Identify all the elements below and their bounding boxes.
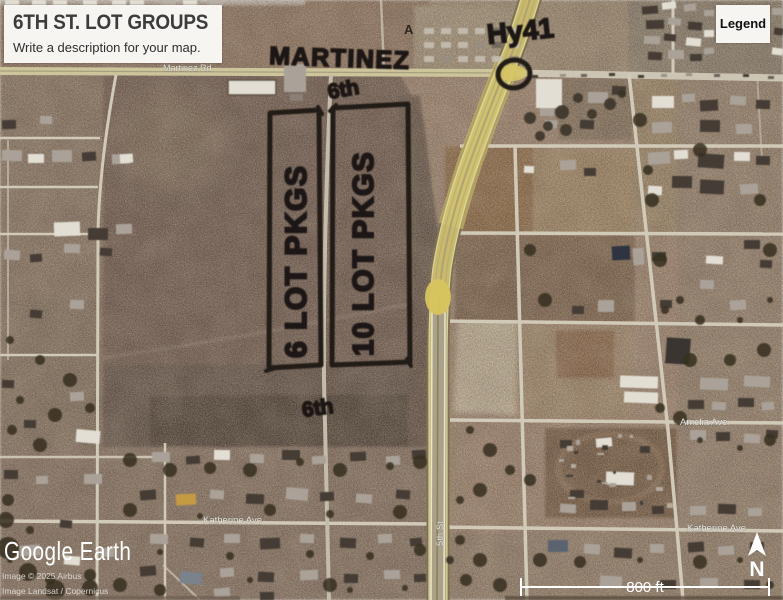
svg-text:5th St: 5th St [435,521,446,546]
svg-text:Katherine Ave: Katherine Ave [203,515,262,526]
svg-text:Katherine Ave: Katherine Ave [687,523,746,534]
svg-text:10 LOT PKGS: 10 LOT PKGS [348,151,380,356]
svg-text:N: N [749,558,764,581]
svg-text:800 ft: 800 ft [626,579,664,596]
svg-text:Martinez Rd: Martinez Rd [163,63,212,73]
svg-text:6 LOT PKGS: 6 LOT PKGS [280,165,313,358]
svg-text:6th: 6th [300,395,334,422]
svg-text:MARTINEZ: MARTINEZ [269,42,411,75]
svg-text:A: A [404,22,414,37]
svg-text:Amelia Ave: Amelia Ave [680,417,727,428]
